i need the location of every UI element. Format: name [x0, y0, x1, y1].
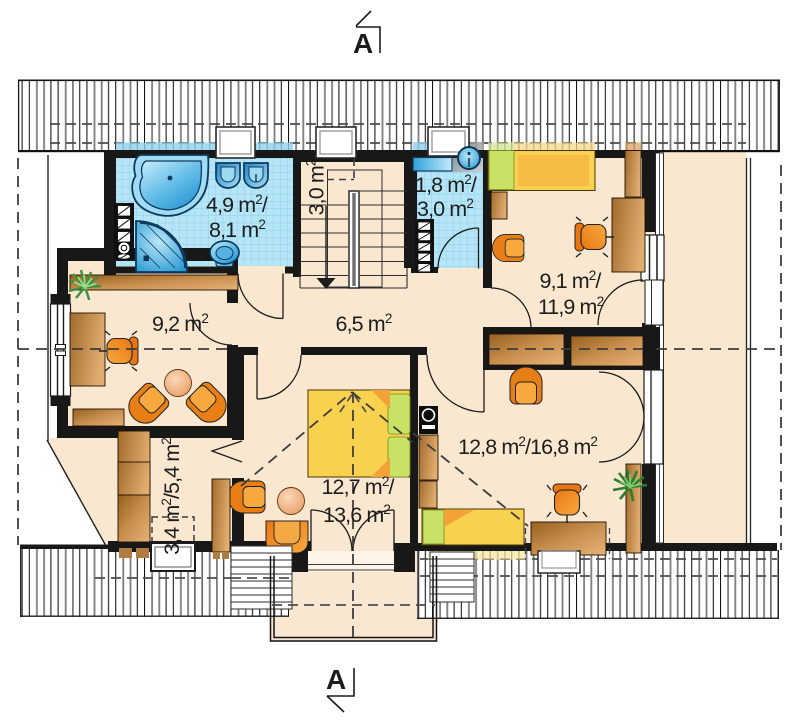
svg-text:3,4 m2/5,4 m2: 3,4 m2/5,4 m2: [159, 438, 184, 555]
svg-text:9,2 m2: 9,2 m2: [152, 311, 208, 336]
svg-text:13,6 m2: 13,6 m2: [323, 502, 390, 527]
svg-text:3,0 m2: 3,0 m2: [304, 159, 329, 215]
svg-text:3,0 m2: 3,0 m2: [417, 196, 473, 221]
svg-text:6,5 m2: 6,5 m2: [336, 311, 392, 336]
svg-text:8,1 m2: 8,1 m2: [209, 217, 265, 242]
svg-text:A: A: [353, 28, 373, 59]
svg-text:12,8 m2/16,8 m2: 12,8 m2/16,8 m2: [458, 434, 597, 459]
svg-text:11,9 m2: 11,9 m2: [538, 294, 604, 319]
svg-text:A: A: [326, 664, 346, 695]
